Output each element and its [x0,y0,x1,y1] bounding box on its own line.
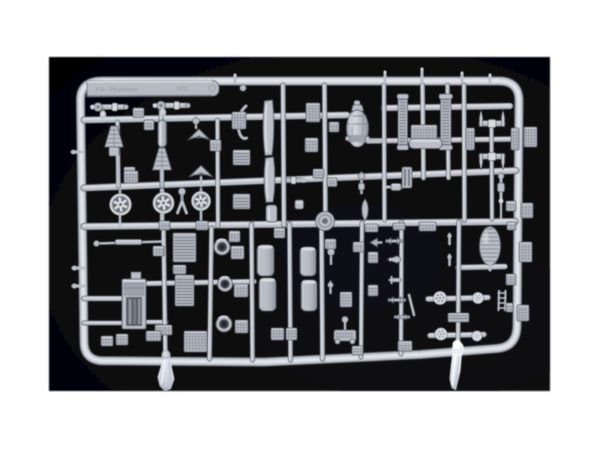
svg-text:F4 - Phantom: F4 - Phantom [96,87,138,94]
svg-text:1/72: 1/72 [176,87,188,93]
